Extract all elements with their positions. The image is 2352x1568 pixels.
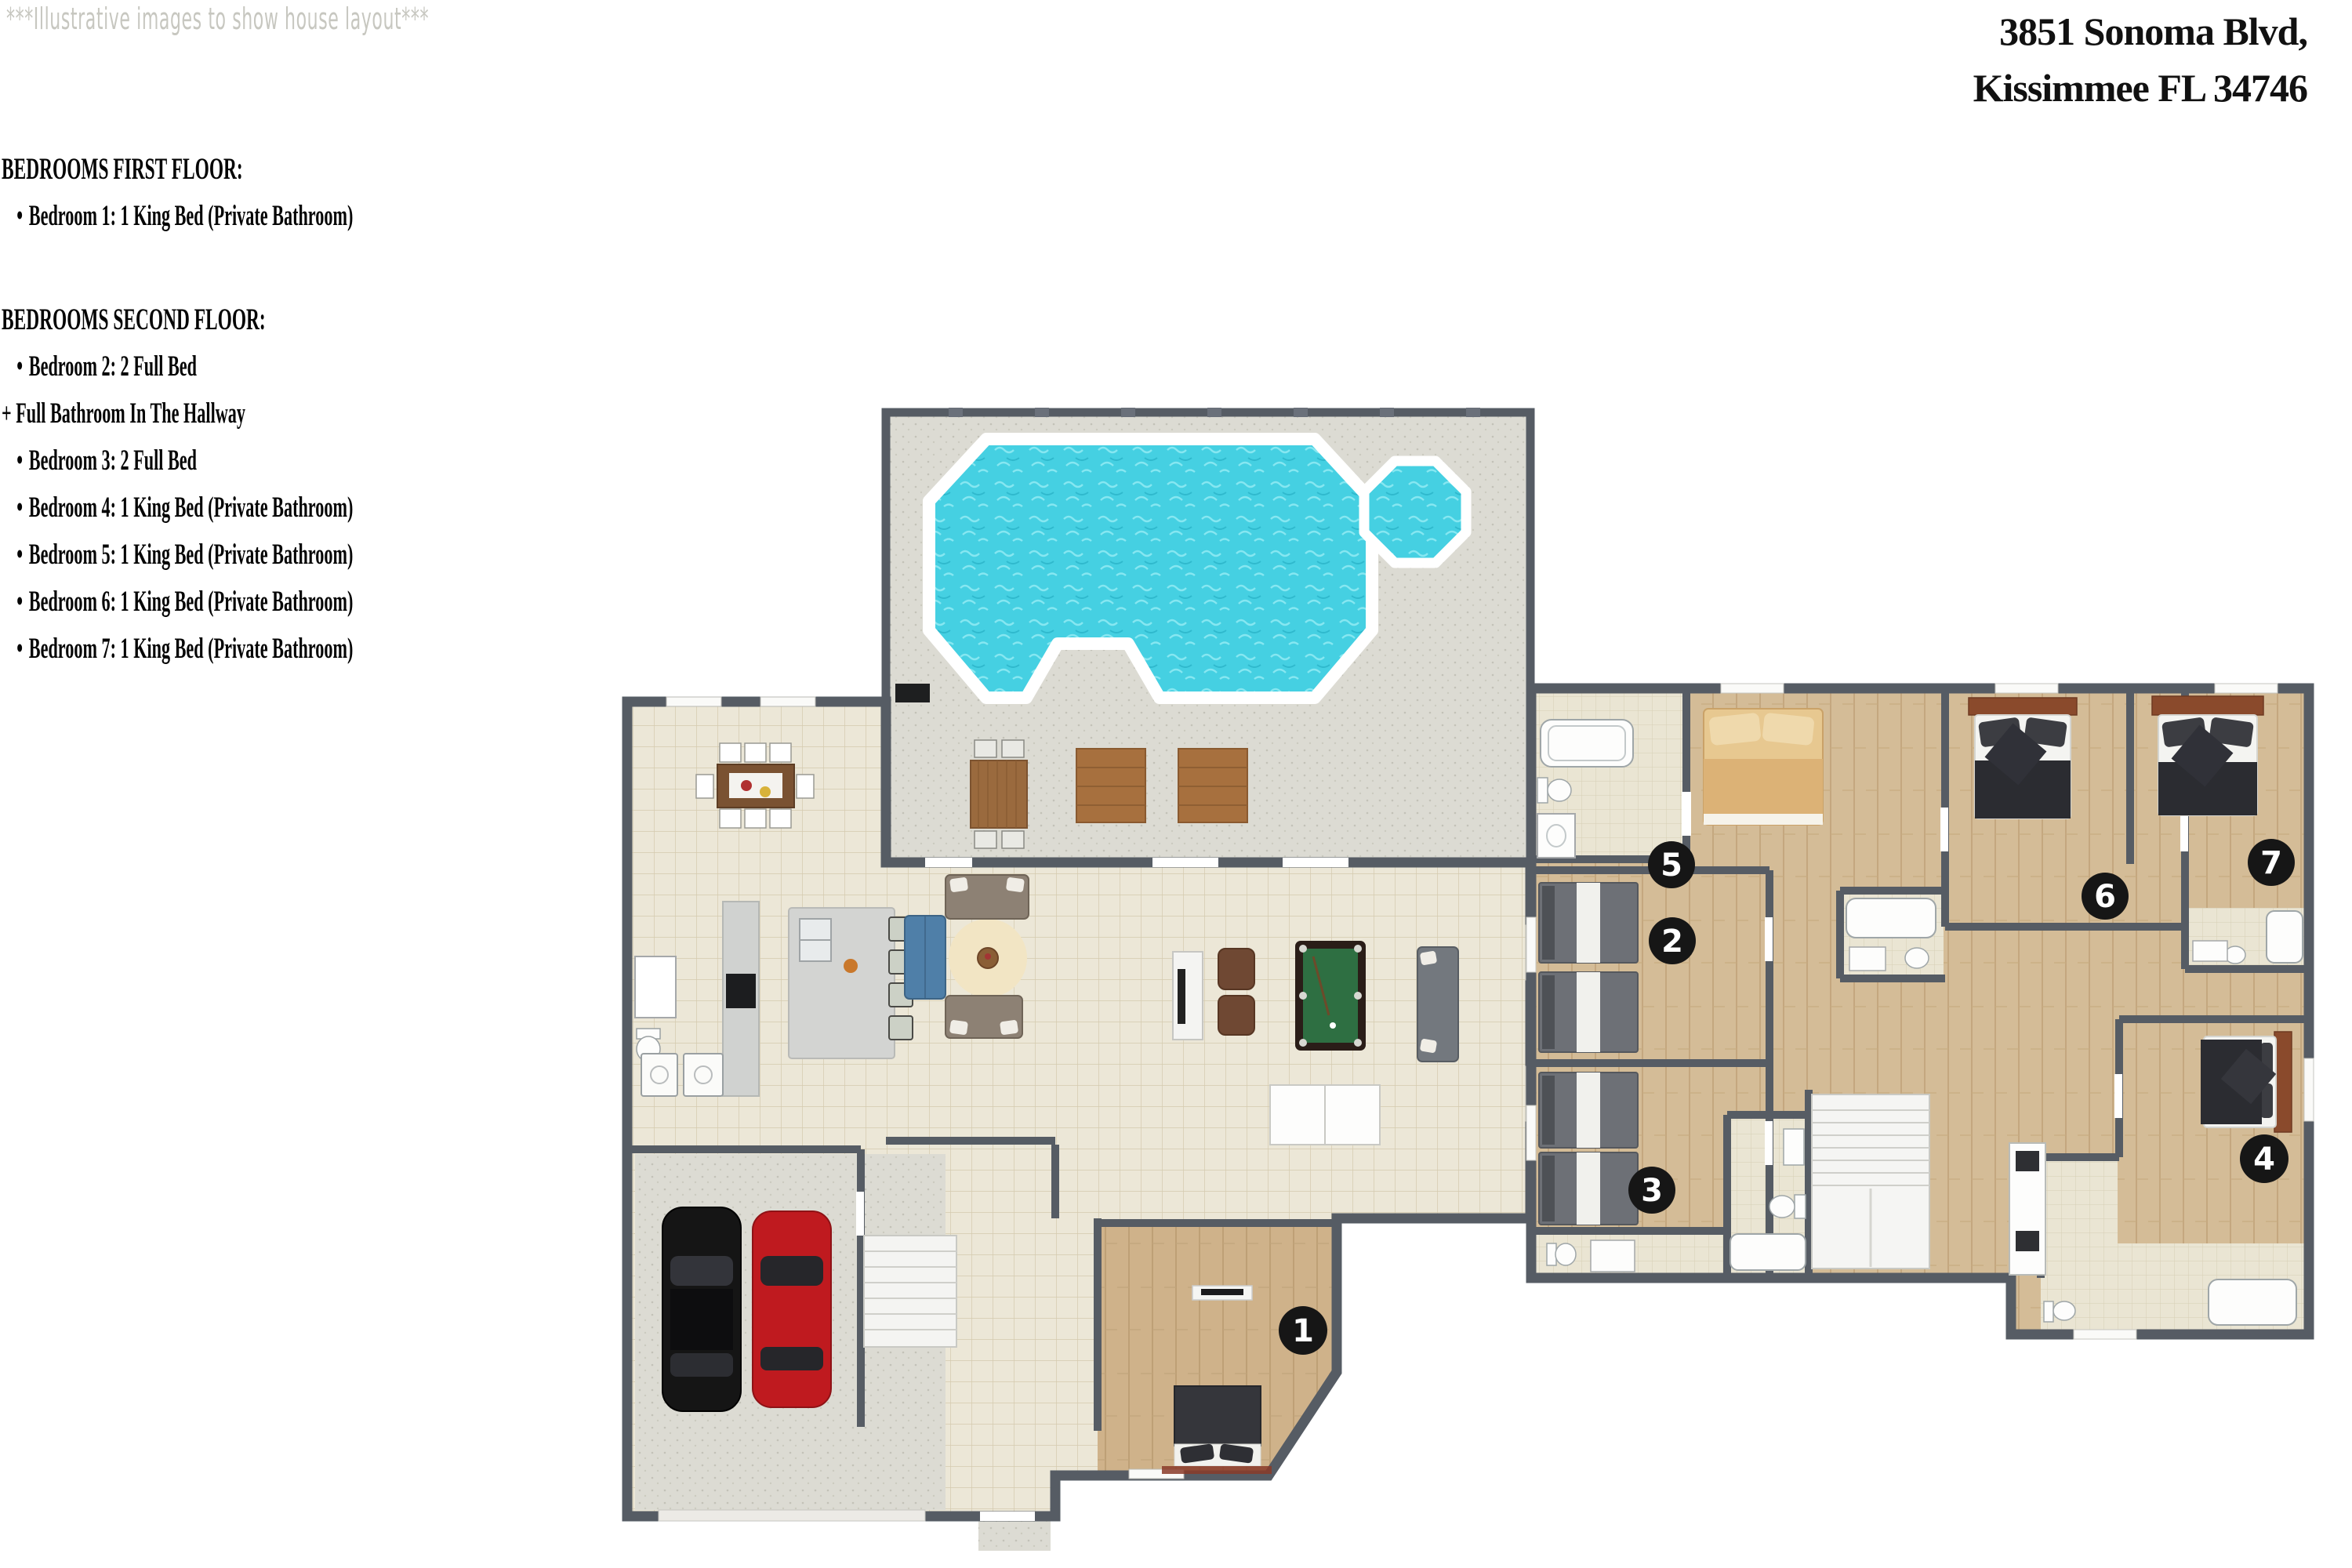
spa (1364, 461, 1466, 563)
full-bed (1539, 972, 1638, 1052)
vanity (1849, 947, 1886, 971)
full-bed (1539, 1152, 1638, 1225)
toilet (1905, 948, 1929, 968)
toilet (1555, 1243, 1576, 1265)
toilet (2225, 946, 2245, 964)
second-floor-heading: BEDROOMS SECOND FLOOR: (2, 296, 778, 343)
cooktop (726, 974, 756, 1008)
tv (1178, 969, 1185, 1024)
svg-text:5: 5 (1661, 848, 1682, 884)
address-line2: Kissimmee FL 34746 (1973, 60, 2307, 116)
red-car (753, 1211, 831, 1407)
washer (641, 1054, 677, 1096)
svg-text:6: 6 (2094, 879, 2116, 915)
first-floor-plan: 1 (612, 408, 1537, 1566)
armchair (1218, 996, 1254, 1035)
first-floor-heading: BEDROOMS FIRST FLOOR: (2, 146, 778, 193)
second-floor-plan: 5 6 7 (1525, 682, 2317, 1348)
full-bed (1539, 1073, 1638, 1148)
garage-door (659, 1510, 925, 1521)
toilet (1548, 779, 1571, 801)
king-bed (1162, 1386, 1272, 1474)
tv-console (1173, 952, 1203, 1040)
bathtub (1730, 1234, 1806, 1270)
svg-text:1: 1 (1292, 1313, 1314, 1349)
toilet (2053, 1301, 2075, 1320)
vanity (635, 956, 676, 1018)
vanity (2193, 941, 2227, 961)
toilet (1769, 1196, 1795, 1218)
sun-lounger (1178, 749, 1247, 822)
bathtub (2209, 1279, 2296, 1325)
sun-lounger (1076, 749, 1145, 822)
second-floor-list-top: Bedroom 2: 2 Full Bed (2, 343, 778, 390)
dryer (684, 1054, 723, 1096)
vanity (1591, 1240, 1635, 1272)
watermark-text: ***Illustrative images to show house lay… (6, 2, 429, 36)
sink (1784, 1129, 1804, 1165)
headboard (1969, 698, 2077, 715)
black-car (662, 1207, 741, 1411)
pool-table (1295, 941, 1366, 1051)
pool-deck (886, 408, 1530, 866)
list-item-bedroom2: Bedroom 2: 2 Full Bed (2, 343, 778, 390)
grill (895, 684, 930, 702)
linen-closet (2009, 1143, 2045, 1275)
bathtub (1846, 898, 1936, 938)
front-door-opening (980, 1512, 1035, 1521)
svg-text:7: 7 (2260, 845, 2282, 881)
vanity (1537, 814, 1575, 858)
room-badge-4: 4 (2240, 1134, 2288, 1183)
list-item-bedroom1: Bedroom 1: 1 King Bed (Private Bathroom) (2, 193, 778, 240)
room-badge-1: 1 (1279, 1306, 1327, 1355)
staircase-second-floor (1812, 1094, 1929, 1269)
room-badge-3: 3 (1628, 1167, 1675, 1214)
armchair (1218, 949, 1254, 989)
property-address: 3851 Sonoma Blvd, Kissimmee FL 34746 (1973, 3, 2307, 116)
room-badge-2: 2 (1649, 917, 1696, 964)
svg-text:2: 2 (1661, 924, 1683, 960)
room-badge-6: 6 (2082, 873, 2129, 920)
full-bed (1539, 883, 1638, 963)
svg-text:3: 3 (1641, 1173, 1663, 1209)
first-floor-list: Bedroom 1: 1 King Bed (Private Bathroom) (2, 193, 778, 240)
swimming-pool (929, 439, 1372, 698)
room-badge-5: 5 (1648, 841, 1695, 888)
bathtub (2267, 911, 2303, 963)
front-porch (978, 1516, 1051, 1551)
address-line1: 3851 Sonoma Blvd, (1973, 3, 2307, 60)
svg-text:4: 4 (2253, 1142, 2275, 1178)
headboard (2274, 1032, 2292, 1132)
room-badge-7: 7 (2248, 839, 2295, 886)
staircase-first-floor (864, 1236, 956, 1347)
tv (1201, 1289, 1243, 1295)
headboard (2152, 696, 2263, 715)
fruit-bowl (844, 959, 858, 973)
